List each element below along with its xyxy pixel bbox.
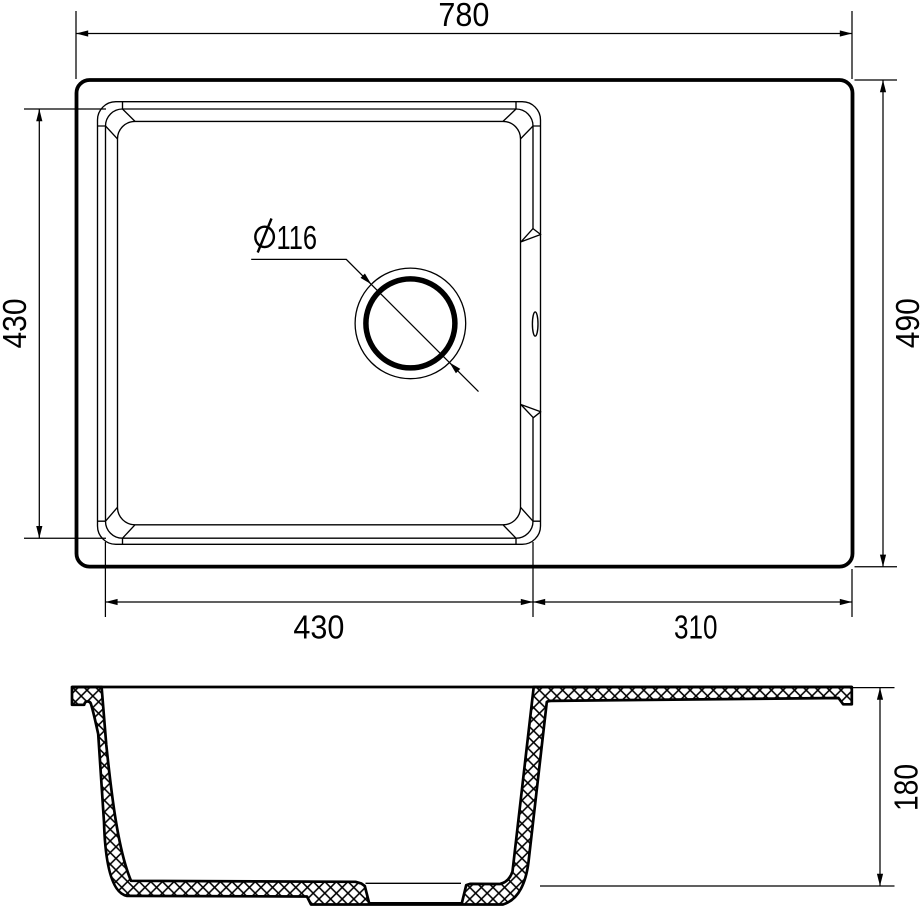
svg-text:116: 116 <box>277 219 318 256</box>
svg-text:490: 490 <box>889 298 921 348</box>
svg-text:180: 180 <box>887 764 921 811</box>
svg-text:430: 430 <box>0 299 33 349</box>
svg-text:780: 780 <box>438 0 489 33</box>
svg-text:430: 430 <box>293 608 344 645</box>
svg-text:310: 310 <box>674 608 718 645</box>
